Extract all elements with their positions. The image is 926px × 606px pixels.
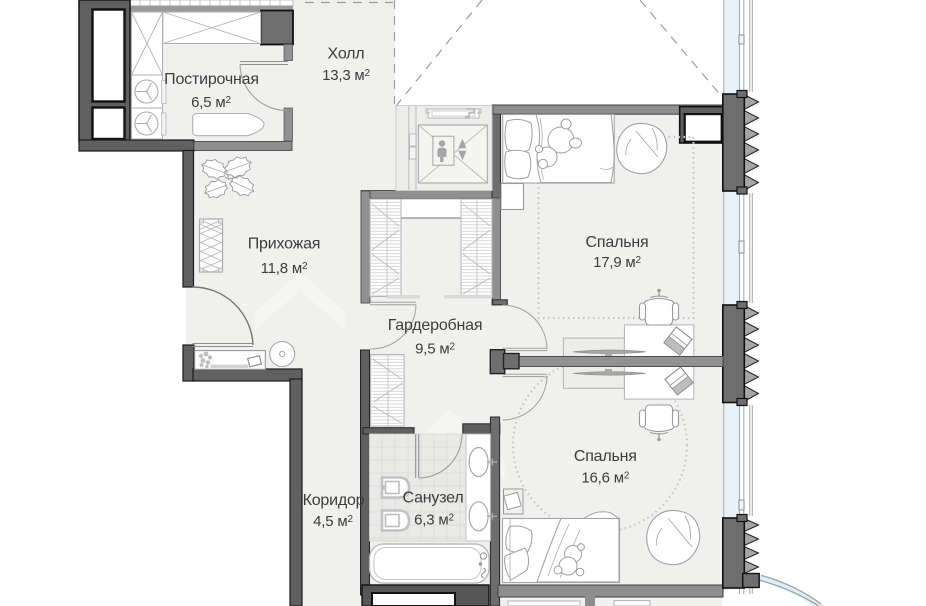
svg-text:16,6 м2: 16,6 м2	[581, 470, 629, 487]
svg-text:6,3 м2: 6,3 м2	[414, 512, 454, 529]
svg-text:Постирочная: Постирочная	[164, 71, 259, 88]
svg-text:Спальня: Спальня	[574, 448, 637, 465]
svg-text:Холл: Холл	[328, 46, 365, 63]
svg-text:Спальня: Спальня	[586, 234, 649, 251]
svg-text:9,5 м2: 9,5 м2	[415, 341, 455, 358]
svg-text:13,3 м2: 13,3 м2	[322, 67, 370, 84]
svg-text:17,9 м2: 17,9 м2	[593, 254, 641, 271]
svg-text:Прихожая: Прихожая	[248, 236, 321, 253]
svg-text:11,8 м2: 11,8 м2	[261, 260, 308, 277]
svg-text:6,5 м2: 6,5 м2	[191, 94, 231, 111]
svg-text:Гардеробная: Гардеробная	[388, 317, 483, 334]
svg-text:4,5 м2: 4,5 м2	[313, 513, 353, 530]
svg-text:Коридор: Коридор	[303, 492, 365, 509]
svg-text:Санузел: Санузел	[403, 490, 464, 507]
